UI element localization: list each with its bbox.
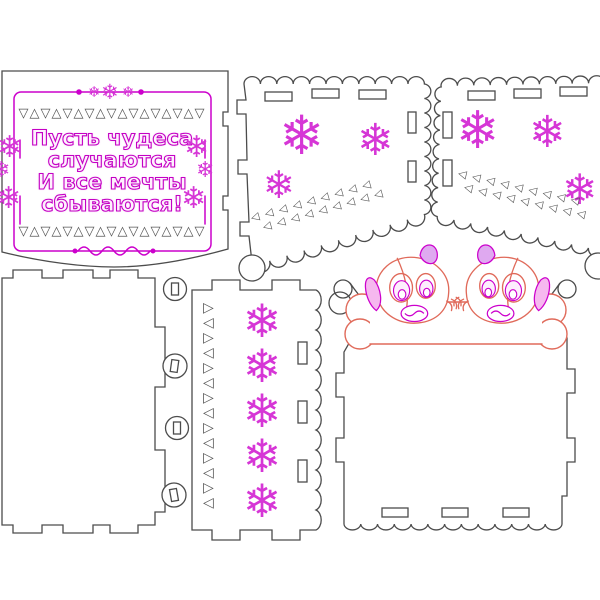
snowflake-icon: ❄ [529,111,566,155]
snowflake-icon: ❄ [122,85,135,100]
zigzag-border-column: ▷◁▷◁▷◁▷◁▷◁▷◁▷◁ [203,301,219,511]
snowflake-icon: ❄ [181,184,206,214]
snowflake-icon: ❄ [357,119,394,163]
laser-cut-layout-canvas: ▽△▽△▽△▽△▽△▽△▽△▽△▽ ▽△▽△▽△▽△▽△▽△▽△▽△▽ Пуст… [0,0,600,600]
triangle-border-bottom: ▽△▽△▽△▽△▽△▽△▽△▽△▽ [6,225,218,238]
decor-overlay: ▽△▽△▽△▽△▽△▽△▽△▽△▽ ▽△▽△▽△▽△▽△▽△▽△▽△▽ Пуст… [0,0,600,600]
snowflake-icon: ❄ [196,160,214,182]
snowflake-icon: ❄ [279,109,324,163]
snowflake-icon: ❄ [0,184,21,214]
snowflake-icon: ❄ [263,166,295,204]
snowflake-icon: ❄ [88,85,101,100]
triangle-border-top: ▽△▽△▽△▽△▽△▽△▽△▽△▽ [6,107,218,120]
snowflake-icon: ❄ [101,82,119,103]
snowflake-icon: ❄ [456,105,500,157]
snowflake-icon: ❄ [0,160,10,182]
snowflake-column: ❄❄❄❄❄ [235,299,289,524]
